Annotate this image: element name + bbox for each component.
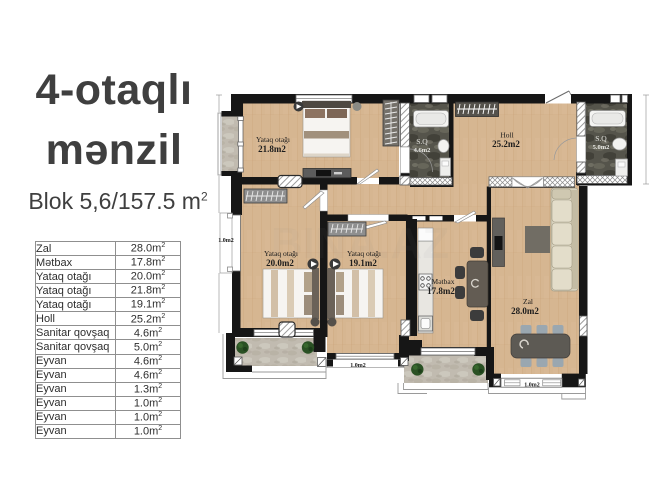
- svg-text:21.8m2: 21.8m2: [258, 144, 286, 154]
- svg-text:19.1m2: 19.1m2: [349, 258, 377, 268]
- svg-text:1.0m2: 1.0m2: [218, 238, 234, 244]
- svg-text:1.0m2: 1.0m2: [524, 383, 540, 389]
- svg-text:1.0m2: 1.0m2: [350, 363, 366, 369]
- svg-text:Yataq otağı: Yataq otağı: [264, 249, 298, 258]
- svg-text:S.Q: S.Q: [416, 137, 428, 146]
- svg-text:Zal: Zal: [523, 297, 533, 306]
- svg-text:Mətbax: Mətbax: [432, 277, 455, 286]
- svg-text:Yataq otağı: Yataq otağı: [256, 135, 290, 144]
- svg-text:17.8m2: 17.8m2: [427, 286, 455, 296]
- svg-text:25.2m2: 25.2m2: [492, 139, 520, 149]
- svg-text:Yataq otağı: Yataq otağı: [347, 249, 381, 258]
- svg-text:28.0m2: 28.0m2: [511, 306, 539, 316]
- svg-text:4.6m2: 4.6m2: [414, 147, 431, 154]
- svg-text:5.0m2: 5.0m2: [593, 144, 610, 151]
- svg-text:S.Q: S.Q: [595, 134, 607, 143]
- svg-text:20.0m2: 20.0m2: [266, 258, 294, 268]
